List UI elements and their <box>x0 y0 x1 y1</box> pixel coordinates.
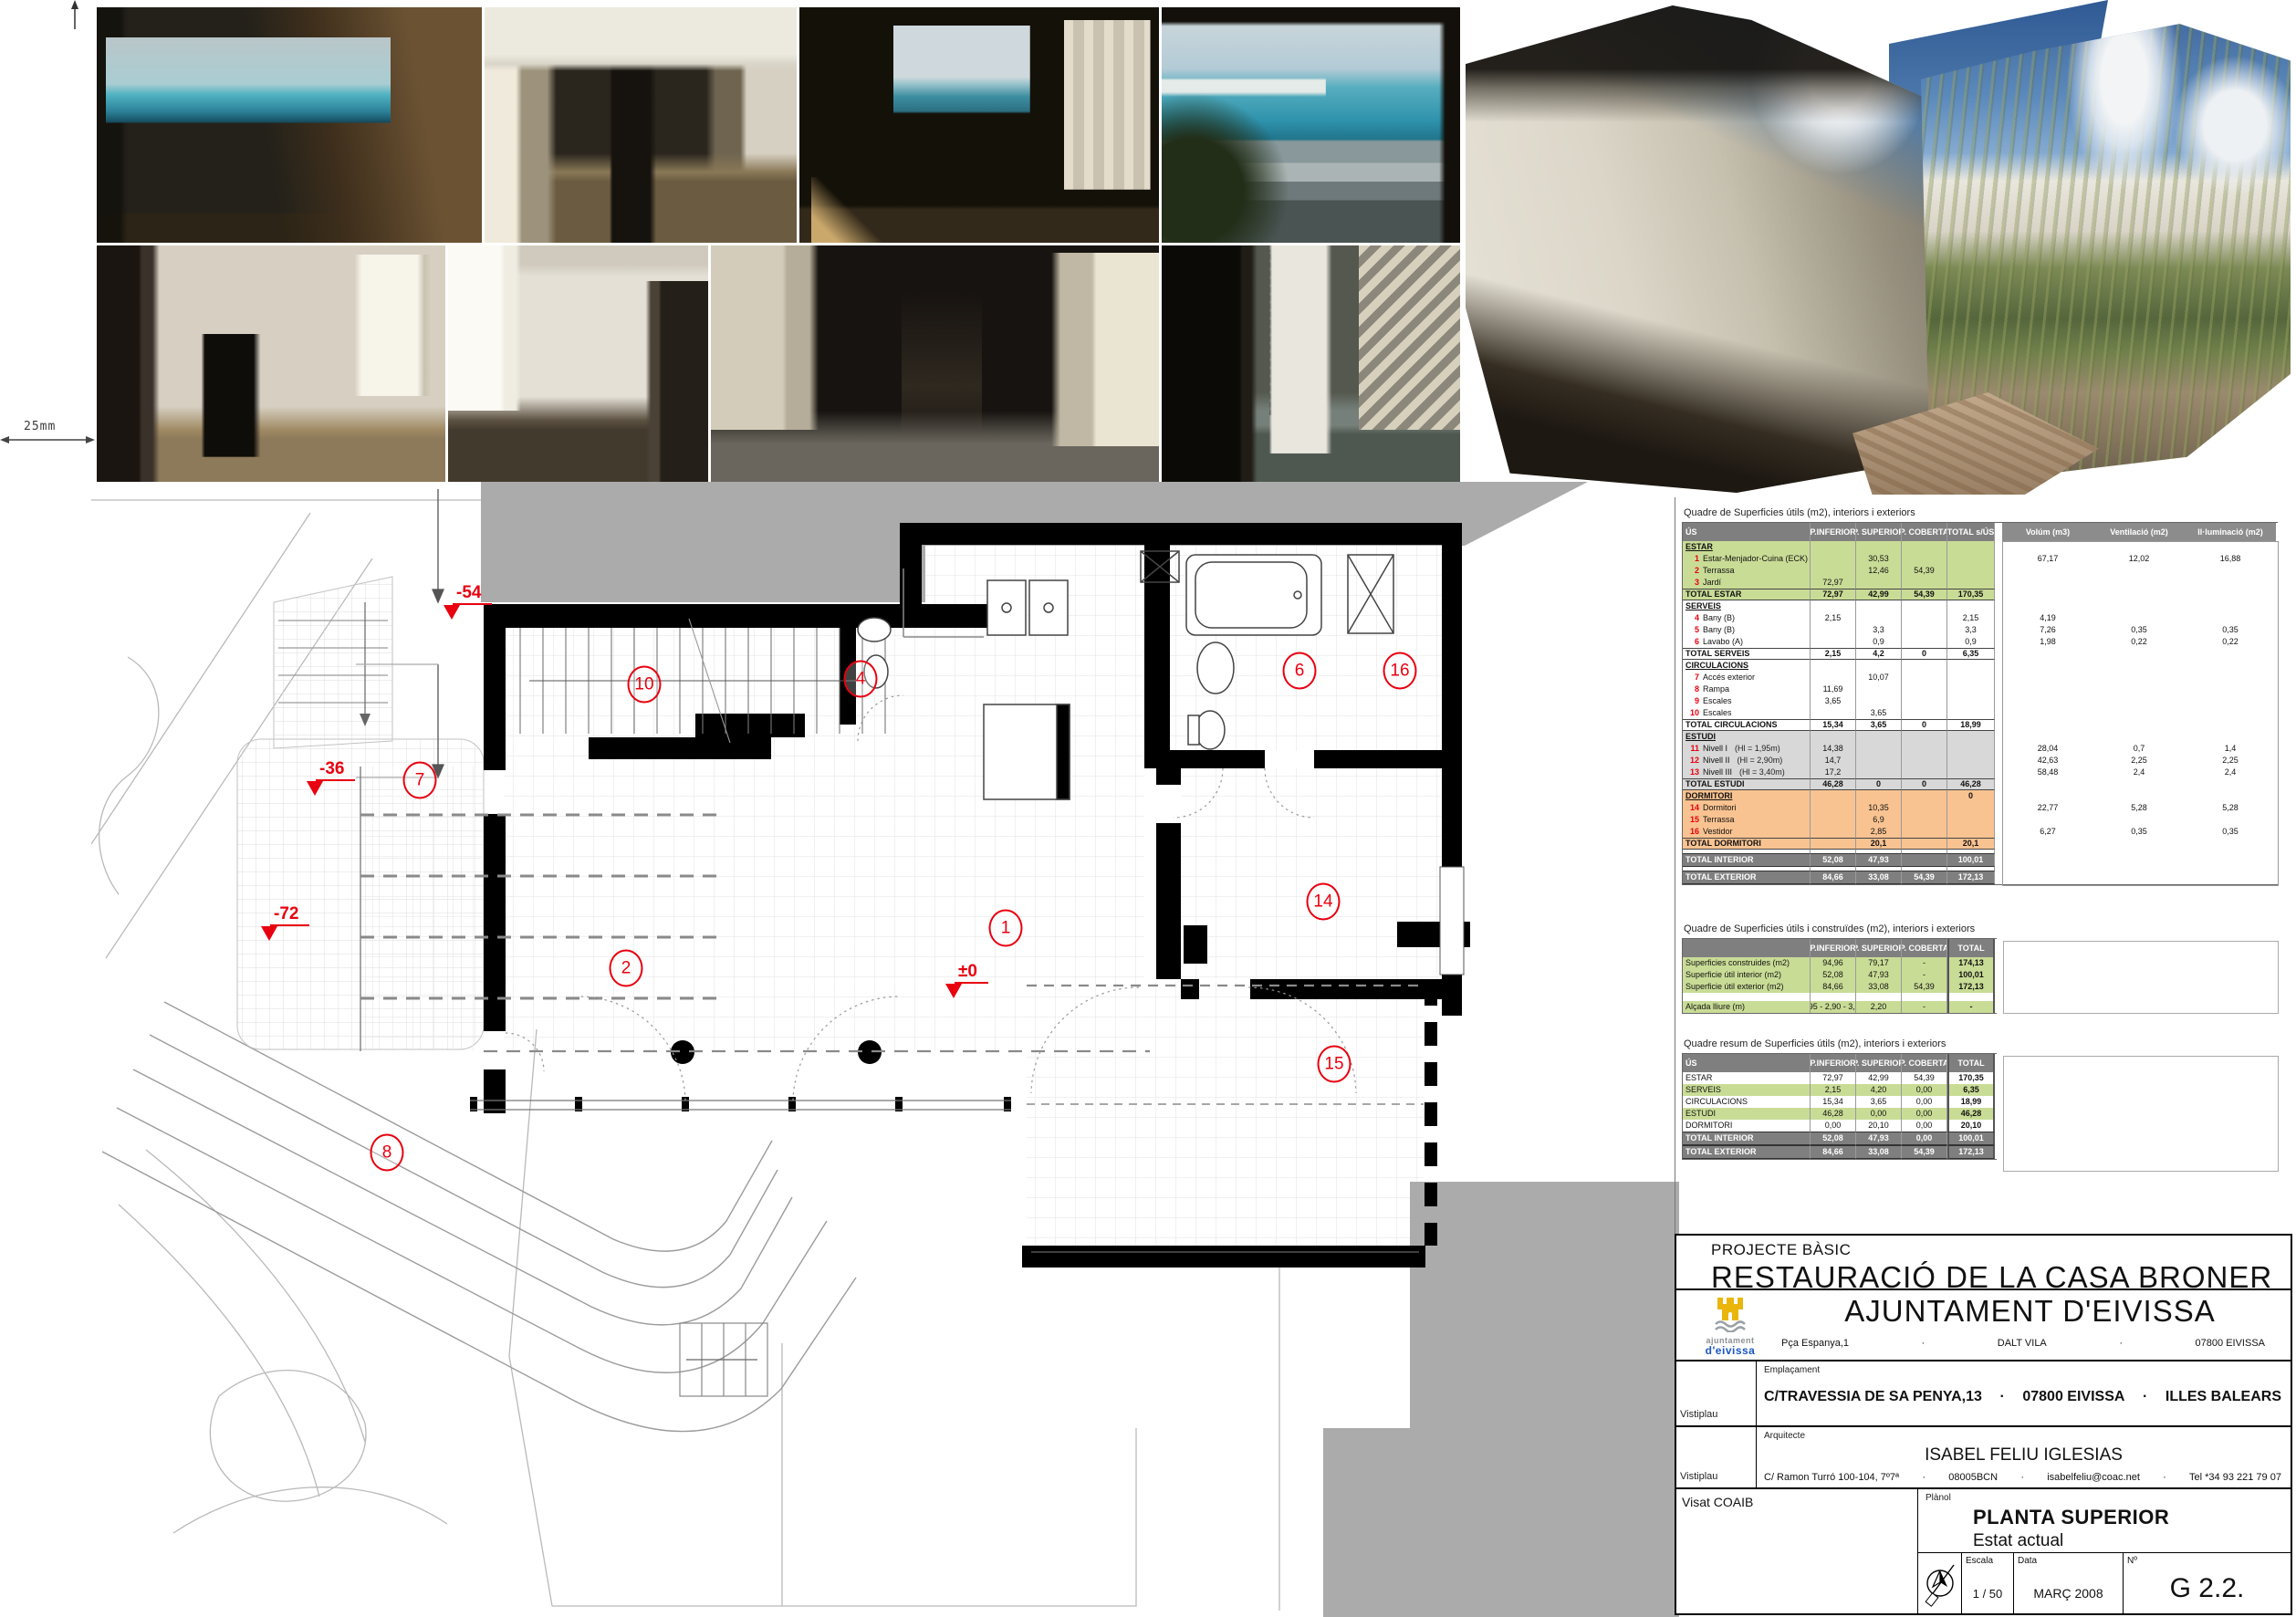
num-label: Nº <box>2127 1556 2137 1566</box>
table-cell <box>1902 695 1947 707</box>
table-row: TOTAL EXTERIOR84,6633,0854,39172,13 <box>1683 871 2278 884</box>
row-number: 13 <box>1685 768 1699 777</box>
arquitecte-cp: 08005BCN <box>1948 1472 1998 1483</box>
table-row: ÚSP.INFERIORP. SUPERIORP. COBERTATOTAL s… <box>1683 523 2278 541</box>
table-cell <box>2185 814 2276 826</box>
table-cell <box>2002 719 2093 731</box>
table-cell <box>1811 660 1856 672</box>
table-cell: 12,46 <box>1856 565 1902 577</box>
table-cell <box>1856 577 1902 589</box>
arquitecte-row: Vistiplau Arquitecte ISABEL FELIU IGLESI… <box>1676 1427 2291 1489</box>
table-cell <box>2093 695 2185 707</box>
table-cell: 0,22 <box>2185 636 2276 648</box>
table-row: 12Nivell II(Hl = 2,90m)14,742,632,252,25 <box>1683 755 2278 767</box>
client-address: Pça Espanya,1 <box>1781 1338 1849 1349</box>
table-cell <box>2093 565 2185 577</box>
dot: · <box>1922 1472 1926 1483</box>
table-cell: 2,85 <box>1856 826 1902 838</box>
table-cell <box>1902 624 1947 636</box>
table-cell: 47,93 <box>1856 853 1902 867</box>
table-cell: TOTAL SERVEIS <box>1683 648 1811 660</box>
table-cell: 7,26 <box>2002 624 2093 636</box>
table-cell: 15,34 <box>1811 719 1856 731</box>
table-cell <box>1811 826 1856 838</box>
table-cell <box>1902 660 1947 672</box>
table-row: TOTAL CIRCULACIONS15,343,65018,99 <box>1683 719 2278 731</box>
table-cell: 2,20 <box>1856 1001 1902 1013</box>
table-cell: 22,77 <box>2002 802 2093 814</box>
table-cell: 54,39 <box>1902 565 1947 577</box>
arquitecte-name: ISABEL FELIU IGLESIAS <box>1757 1445 2291 1466</box>
table-cell <box>1902 553 1947 565</box>
client-address-line: Pça Espanya,1 · DALT VILA · 07800 EIVISS… <box>1781 1338 2265 1349</box>
table-row: TOTAL ESTUDI46,280046,28 <box>1683 778 2278 790</box>
table-cell: Alçada lliure (m) <box>1683 1001 1811 1013</box>
client-row: ajuntament d'eivissa AJUNTAMENT D'EIVISS… <box>1676 1290 2291 1361</box>
row-label: TOTAL INTERIOR <box>1685 856 1754 864</box>
table-row: SERVEIS <box>1683 600 2278 612</box>
table-cell <box>1902 743 1947 755</box>
row-label: ESTAR <box>1685 543 1713 551</box>
table-cell <box>1947 826 1995 838</box>
table-title: Quadre de Superficies útils i construïde… <box>1684 923 2284 934</box>
table-cell: 2,15 <box>1811 612 1856 624</box>
table-row: TOTAL ESTAR72,9742,9954,39170,35 <box>1683 589 2278 600</box>
table-cell <box>1902 838 1947 850</box>
row-label: Escales <box>1703 697 1732 705</box>
arquitecte-label: Arquitecte <box>1764 1431 1805 1441</box>
table-cell <box>2093 600 2185 612</box>
table-cell: 0,35 <box>2093 624 2185 636</box>
column-header: Ventilació (m2) <box>2093 523 2185 541</box>
table-cell <box>1856 683 1902 695</box>
table-cell <box>1947 565 1995 577</box>
table-cell: 4,2 <box>1856 648 1902 660</box>
table-cell: 3,65 <box>1856 1096 1902 1108</box>
table-cell: 15,34 <box>1811 1096 1856 1108</box>
table-cell: 13Nivell III(Hl = 3,40m) <box>1683 767 1811 778</box>
row-number: 7 <box>1685 673 1699 682</box>
column-header <box>1683 939 1811 957</box>
table-cell: 42,99 <box>1856 1072 1902 1084</box>
table-row: 16Vestidor2,856,270,350,35 <box>1683 826 2278 838</box>
table-cell <box>1811 600 1856 612</box>
table-cell: TOTAL EXTERIOR <box>1683 1145 1811 1159</box>
column-header: Il·luminació (m2) <box>2185 523 2276 541</box>
escala-value: 1 / 50 <box>1962 1587 2013 1601</box>
table-cell <box>2185 672 2276 683</box>
table-cell: 20,1 <box>1947 838 1995 850</box>
table-cell: 2,15 <box>1811 648 1856 660</box>
table-cell <box>1947 993 1995 1001</box>
row-label: TOTAL INTERIOR <box>1685 1134 1754 1142</box>
table-cell <box>1683 993 1811 1001</box>
table-cell: 6,35 <box>1947 1084 1995 1096</box>
table-cell <box>1947 755 1995 767</box>
table-cell <box>2185 565 2276 577</box>
table-cell <box>2185 577 2276 589</box>
table-cell: 3,65 <box>1811 695 1856 707</box>
column-header: TOTAL s/ÚS <box>1947 523 1995 541</box>
table-cell <box>2093 790 2185 802</box>
table-cell <box>1856 695 1902 707</box>
table-cell: 33,08 <box>1856 981 1902 993</box>
table-cell <box>2185 719 2276 731</box>
dot: · <box>2119 1338 2123 1349</box>
table-cell: 100,01 <box>1947 969 1995 981</box>
row-label: Alçada lliure (m) <box>1685 1003 1745 1011</box>
table-cell <box>2185 648 2276 660</box>
table-cell <box>2002 790 2093 802</box>
table-cell <box>1902 853 1947 867</box>
table-row: TOTAL SERVEIS2,154,206,35 <box>1683 648 2278 660</box>
table-cell: TOTAL ESTAR <box>1683 589 1811 600</box>
table-cell <box>1811 707 1856 719</box>
surface-table-built: Quadre de Superficies útils i construïde… <box>1682 923 2284 1014</box>
dot: · <box>1922 1338 1926 1349</box>
toilet-icon <box>1195 711 1225 749</box>
table-row: CIRCULACIONS15,343,650,0018,99 <box>1683 1096 1997 1108</box>
table-cell: 5Bany (B) <box>1683 624 1811 636</box>
table-cell: 16Vestidor <box>1683 826 1811 838</box>
table-cell: 3,65 <box>1856 719 1902 731</box>
row-label: Nivell I <box>1703 745 1727 753</box>
table-cell: ESTAR <box>1683 541 1811 553</box>
table-cell: 42,63 <box>2002 755 2093 767</box>
table-grid: P.INFERIORP. SUPERIORP. COBERTATOTALSupe… <box>1682 938 1997 1014</box>
table-cell <box>1902 731 1947 743</box>
table-cell: 28,04 <box>2002 743 2093 755</box>
table-cell <box>1811 802 1856 814</box>
table-cell <box>1947 577 1995 589</box>
table-cell <box>1856 731 1902 743</box>
surface-table-main: Quadre de Superficies útils (m2), interi… <box>1682 507 2284 885</box>
planol-subtitle: Estat actual <box>1973 1531 2063 1551</box>
castle-logo-icon <box>1710 1296 1750 1332</box>
scale-dimension-label: 25mm <box>24 420 56 433</box>
column-header: P.INFERIOR <box>1811 1054 1856 1072</box>
table-cell <box>1811 731 1856 743</box>
table-cell <box>1947 683 1995 695</box>
row-label: Bany (B) <box>1703 614 1735 622</box>
table-cell: 72,97 <box>1811 577 1856 589</box>
visat-label: Visat COAIB <box>1682 1495 1753 1509</box>
table-cell: 2,4 <box>2185 767 2276 778</box>
table-cell: TOTAL ESTUDI <box>1683 778 1811 790</box>
table-cell <box>1811 565 1856 577</box>
table-cell <box>2185 731 2276 743</box>
table-cell: 3Jardí <box>1683 577 1811 589</box>
table-cell: 4,20 <box>1856 1084 1902 1096</box>
ramp-lines <box>102 1002 856 1432</box>
floor-plan <box>91 475 1679 1617</box>
table-row: 1Estar-Menjador-Cuina (ECK)30,5367,1712,… <box>1683 553 2278 565</box>
table-cell: 5,28 <box>2093 802 2185 814</box>
collage-casa-broner-facade <box>1466 5 1958 493</box>
row-label: Escales <box>1703 709 1732 717</box>
vistiplau-label-2: Vistiplau <box>1680 1471 1717 1482</box>
table-cell: CIRCULACIONS <box>1683 660 1811 672</box>
table-cell <box>2185 612 2276 624</box>
table-cell: 0 <box>1902 648 1947 660</box>
row-label: Terrassa <box>1703 816 1735 824</box>
table-cell: ESTAR <box>1683 1072 1811 1084</box>
arquitecte-contact-line: C/ Ramon Turró 100-104, 7º7ª · 08005BCN … <box>1764 1472 2281 1483</box>
table-cell: 0,00 <box>1902 1120 1947 1132</box>
row-label: SERVEIS <box>1685 602 1721 610</box>
table-cell: 4,19 <box>2002 612 2093 624</box>
table-cell <box>2093 577 2185 589</box>
table-cell <box>1902 814 1947 826</box>
project-type: PROJECTE BÀSIC <box>1711 1241 2291 1259</box>
table-cell: 2,15 <box>1947 612 1995 624</box>
scale-date-row: Escala 1 / 50 Data MARÇ 2008 Nº G 2.2. <box>1918 1552 2291 1613</box>
photo-interior-pillar-room <box>485 7 797 243</box>
table-cell <box>2002 838 2093 850</box>
table-cell: 46,28 <box>1947 778 1995 790</box>
table-cell: 47,93 <box>1856 969 1902 981</box>
column-header: P. COBERTA <box>1902 939 1947 957</box>
planol-row: Visat COAIB Plànol PLANTA SUPERIOR Estat… <box>1676 1489 2291 1613</box>
table-cell <box>2002 871 2093 884</box>
table-row: 4Bany (B)2,152,154,19 <box>1683 612 2278 624</box>
column-header: P. SUPERIOR <box>1856 523 1902 541</box>
column-header: P. SUPERIOR <box>1856 1054 1902 1072</box>
table-cell <box>2185 660 2276 672</box>
arquitecte-email: isabelfeliu@coac.net <box>2047 1472 2140 1483</box>
row-label: CIRCULACIONS <box>1685 662 1748 670</box>
project-header: PROJECTE BÀSIC RESTAURACIÓ DE LA CASA BR… <box>1676 1236 2291 1290</box>
table-cell: TOTAL EXTERIOR <box>1683 871 1811 884</box>
column-header: ÚS <box>1683 523 1811 541</box>
table-cell <box>2093 589 2185 600</box>
table-cell: 94,96 <box>1811 957 1856 969</box>
table-cell <box>2002 541 2093 553</box>
table-cell: 2,4 <box>2093 767 2185 778</box>
table-cell: Superficie útil exterior (m2) <box>1683 981 1811 993</box>
row-number: 1 <box>1685 555 1699 563</box>
table-cell: TOTAL DORMITORI <box>1683 838 1811 850</box>
table-cell <box>1902 683 1947 695</box>
table-cell: - <box>1902 969 1947 981</box>
table-cell: DORMITORI <box>1683 790 1811 802</box>
row-label: TOTAL EXTERIOR <box>1685 873 1757 882</box>
table-row: 2Terrassa12,4654,39 <box>1683 565 2278 577</box>
emplacament-street: C/TRAVESSIA DE SA PENYA,13 <box>1764 1389 1982 1405</box>
row-label: ESTAR <box>1685 1074 1712 1082</box>
empty-box <box>2003 941 2279 1014</box>
table-cell <box>2093 778 2185 790</box>
table-row: ESTAR <box>1683 541 2278 553</box>
table-cell: 172,13 <box>1947 1145 1995 1159</box>
table-cell <box>2002 814 2093 826</box>
table-title: Quadre resum de Superficies útils (m2), … <box>1684 1038 2284 1049</box>
photo-interior-dark-doorway <box>711 245 1159 482</box>
dimension-line <box>0 434 95 445</box>
table-cell: 2,25 <box>2093 755 2185 767</box>
table-cell: SERVEIS <box>1683 1084 1811 1096</box>
column-header: TOTAL <box>1947 939 1995 957</box>
table-cell: 0 <box>1947 790 1995 802</box>
table-cell <box>2185 541 2276 553</box>
data-value: MARÇ 2008 <box>2014 1586 2123 1601</box>
small-toilet-icon <box>864 655 888 688</box>
row-note: (Hl = 1,95m) <box>1735 745 1780 753</box>
table-cell <box>2185 853 2276 867</box>
table-cell <box>2093 648 2185 660</box>
table-cell: TOTAL INTERIOR <box>1683 853 1811 867</box>
table-cell: 11,69 <box>1811 683 1856 695</box>
table-cell: - <box>1902 1001 1947 1013</box>
table-cell: 0,00 <box>1811 1120 1856 1132</box>
small-sink-icon <box>858 618 891 642</box>
table-cell: Superficie útil interior (m2) <box>1683 969 1811 981</box>
table-cell <box>1856 790 1902 802</box>
table-cell <box>1947 802 1995 814</box>
table-cell <box>1902 790 1947 802</box>
table-cell <box>2093 853 2185 867</box>
row-label: Nivell III <box>1703 768 1732 777</box>
table-cell <box>2002 565 2093 577</box>
table-cell: 1,4 <box>2185 743 2276 755</box>
table-cell <box>1902 755 1947 767</box>
row-label: CIRCULACIONS <box>1685 1098 1748 1106</box>
table-cell <box>1856 660 1902 672</box>
table-grid: ÚSP.INFERIORP. SUPERIORP. COBERTATOTALES… <box>1682 1053 1997 1160</box>
table-cell: 17,2 <box>1811 767 1856 778</box>
photo-interior-curtains-window <box>799 7 1159 243</box>
table-cell <box>1902 577 1947 589</box>
table-cell: 15Terrassa <box>1683 814 1811 826</box>
table-cell <box>1902 993 1947 1001</box>
table-row: 14Dormitori10,3522,775,285,28 <box>1683 802 2278 814</box>
table-cell <box>1811 553 1856 565</box>
table-cell <box>1947 541 1995 553</box>
table-cell: 2,25 <box>2185 755 2276 767</box>
vistiplau-cell: Vistiplau <box>1676 1361 1757 1425</box>
table-cell: 33,08 <box>1856 871 1902 884</box>
table-cell: 84,66 <box>1811 981 1856 993</box>
table-cell: 2Terrassa <box>1683 565 1811 577</box>
table-cell <box>2093 871 2185 884</box>
table-cell <box>2002 778 2093 790</box>
table-cell: 1,95 - 2,90 - 3,40 <box>1811 1001 1856 1013</box>
table-cell: TOTAL INTERIOR <box>1683 1132 1811 1145</box>
table-cell <box>1947 707 1995 719</box>
table-row: SERVEIS2,154,200,006,35 <box>1683 1084 1997 1096</box>
row-label: Nivell II <box>1703 756 1730 765</box>
table-cell: 67,17 <box>2002 553 2093 565</box>
ajuntament-logo: ajuntament d'eivissa <box>1691 1296 1769 1356</box>
table-row: 7Accés exterior10,07 <box>1683 672 2278 683</box>
table-row: 15Terrassa6,9 <box>1683 814 2278 826</box>
table-cell <box>1947 600 1995 612</box>
table-cell <box>1947 767 1995 778</box>
table-cell <box>1902 636 1947 648</box>
table-cell: 58,48 <box>2002 767 2093 778</box>
table-cell <box>2002 589 2093 600</box>
row-number: 4 <box>1685 614 1699 622</box>
table-row: Alçada lliure (m)1,95 - 2,90 - 3,402,20-… <box>1683 1001 1997 1013</box>
table-cell: 100,01 <box>1947 1132 1995 1145</box>
photo-interior-gate-door <box>1162 245 1460 482</box>
sheet-number-cell: Nº G 2.2. <box>2124 1553 2291 1613</box>
table-cell <box>1856 993 1902 1001</box>
table-cell: 0,9 <box>1947 636 1995 648</box>
row-label: Superficie útil interior (m2) <box>1685 971 1781 979</box>
surface-table-summary: Quadre resum de Superficies útils (m2), … <box>1682 1038 2284 1160</box>
row-label: Rampa <box>1703 685 1729 694</box>
table-cell <box>1947 731 1995 743</box>
table-cell <box>2185 790 2276 802</box>
table-row: 13Nivell III(Hl = 3,40m)17,258,482,42,4 <box>1683 767 2278 778</box>
table-cell <box>1811 636 1856 648</box>
table-cell: 47,93 <box>1856 1132 1902 1145</box>
row-number: 6 <box>1685 638 1699 646</box>
planol-title: PLANTA SUPERIOR <box>1973 1506 2169 1529</box>
photo-exterior-collage <box>1460 0 2296 497</box>
table-row: 6Lavabo (A)0,90,91,980,220,22 <box>1683 636 2278 648</box>
table-row: TOTAL INTERIOR52,0847,930,00100,01 <box>1683 1132 1997 1145</box>
table-cell: 14,38 <box>1811 743 1856 755</box>
table-cell: 54,39 <box>1902 1072 1947 1084</box>
dot: · <box>2143 1389 2147 1405</box>
table-row: 10Escales3,65 <box>1683 707 2278 719</box>
row-number: 8 <box>1685 685 1699 694</box>
table-cell: 18,99 <box>1947 1096 1995 1108</box>
logo-text-2: d'eivissa <box>1691 1345 1769 1356</box>
table-cell: - <box>1947 1001 1995 1013</box>
table-cell: 12,02 <box>2093 553 2185 565</box>
table-row: 8Rampa11,69 <box>1683 683 2278 695</box>
table-cell: 0,00 <box>1902 1096 1947 1108</box>
table-cell <box>1947 672 1995 683</box>
table-cell: DORMITORI <box>1683 1120 1811 1132</box>
table-cell <box>2185 707 2276 719</box>
arquitecte-address: C/ Ramon Turró 100-104, 7º7ª <box>1764 1472 1899 1483</box>
table-cell: 20,10 <box>1856 1120 1902 1132</box>
column-header: ÚS <box>1683 1054 1811 1072</box>
table-cell <box>1856 743 1902 755</box>
table-cell: 54,39 <box>1902 589 1947 600</box>
row-number: 9 <box>1685 697 1699 705</box>
table-row: 11Nivell I(Hl = 1,95m)14,3828,040,71,4 <box>1683 743 2278 755</box>
row-number: 3 <box>1685 579 1699 587</box>
table-cell: 46,28 <box>1811 1108 1856 1120</box>
row-label: TOTAL DORMITORI <box>1685 840 1761 848</box>
table-cell: 18,99 <box>1947 719 1995 731</box>
row-label: Terrassa <box>1703 567 1735 575</box>
row-number: 2 <box>1685 567 1699 575</box>
table-cell <box>2002 660 2093 672</box>
table-row: TOTAL INTERIOR52,0847,93100,01 <box>1683 853 2278 867</box>
table-row: 9Escales3,65 <box>1683 695 2278 707</box>
emplacament-region: ILLES BALEARS <box>2166 1389 2281 1405</box>
table-cell: 79,17 <box>1856 957 1902 969</box>
table-cell: 10Escales <box>1683 707 1811 719</box>
row-label: Bany (B) <box>1703 626 1735 634</box>
vistiplau-cell-2: Vistiplau <box>1676 1427 1757 1487</box>
table-cell <box>2002 707 2093 719</box>
table-cell <box>1902 541 1947 553</box>
row-label: Jardí <box>1703 579 1721 587</box>
table-cell: 172,13 <box>1947 981 1995 993</box>
table-cell <box>2185 695 2276 707</box>
escala-label: Escala <box>1966 1556 1993 1566</box>
sheet-number: G 2.2. <box>2124 1573 2291 1604</box>
row-number: 14 <box>1685 804 1699 812</box>
column-header: P. SUPERIOR <box>1856 939 1902 957</box>
